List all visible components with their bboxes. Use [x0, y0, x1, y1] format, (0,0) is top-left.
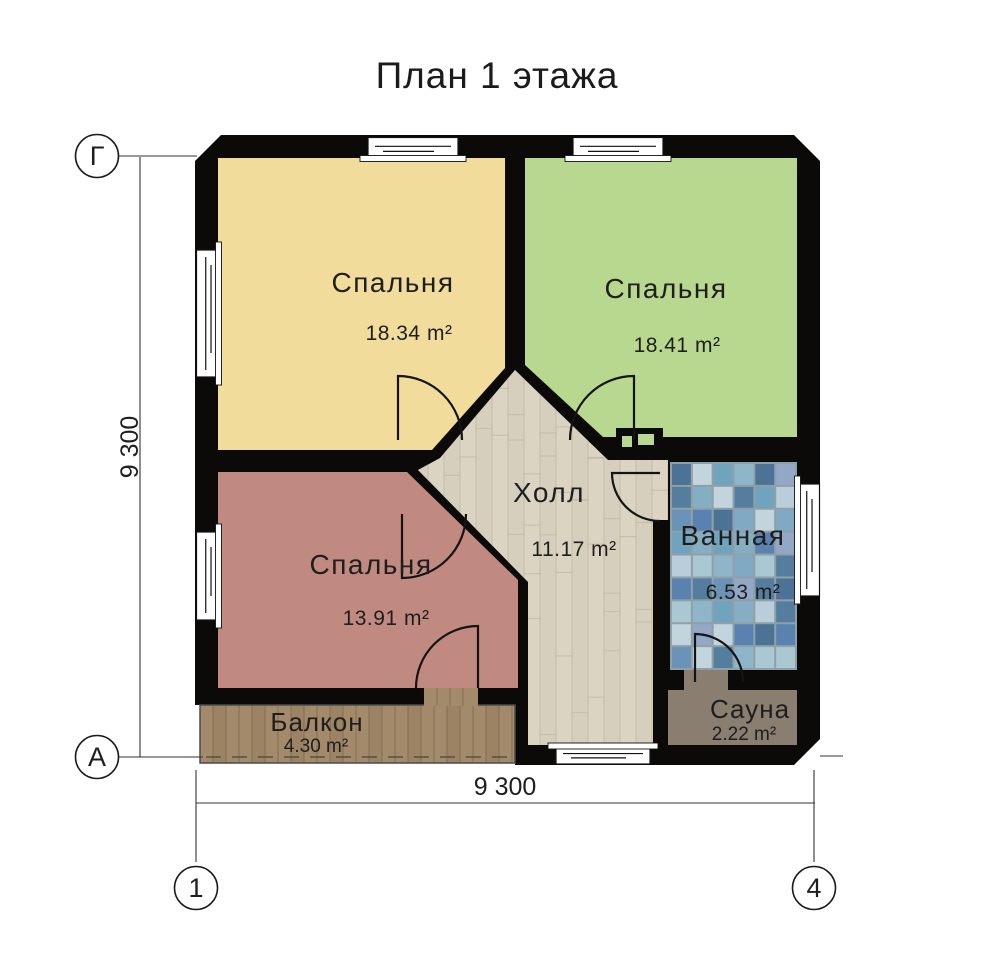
window-symbol [565, 138, 671, 162]
window-symbol [197, 524, 222, 628]
axis-label-col-right: 4 [806, 873, 821, 903]
balcony-name: Балкон [270, 707, 363, 737]
wall-bathroom-left [653, 520, 668, 670]
window-symbol [795, 476, 820, 604]
room-bathroom [670, 462, 797, 670]
hall-name: Холл [513, 477, 585, 508]
bedroom1-name: Спальня [331, 267, 454, 298]
hall-area: 11.17 m² [531, 538, 616, 561]
room-bedroom1 [218, 158, 505, 450]
balcony-door-threshold [424, 688, 478, 706]
axis-label-row-bottom: А [88, 742, 106, 772]
sauna-door-gap [684, 670, 728, 690]
bedroom3-area: 13.91 m² [343, 607, 430, 630]
bedroom2-area: 18.41 m² [634, 334, 721, 357]
dim-text-left: 9 300 [116, 416, 144, 479]
window-symbol [548, 743, 658, 764]
sauna-area: 2.22 m² [712, 724, 776, 745]
page-title: План 1 этажа [376, 55, 619, 96]
axis-label-col-left: 1 [188, 873, 203, 903]
bedroom1-area: 18.34 m² [366, 322, 453, 345]
floor-plan-svg: План 1 этажа [0, 0, 990, 964]
floor-plan-page: План 1 этажа [0, 0, 990, 964]
bedroom3-name: Спальня [309, 549, 432, 580]
bathroom-area: 6.53 m² [706, 581, 781, 604]
balcony-area: 4.30 m² [284, 736, 348, 757]
vent-shaft-icon [616, 428, 663, 458]
sauna-name: Сауна [710, 694, 790, 724]
bedroom2-name: Спальня [604, 273, 727, 304]
wall-sauna-left [653, 690, 668, 745]
dim-text-bottom: 9 300 [474, 773, 537, 801]
bathroom-name: Ванная [681, 520, 786, 551]
window-symbol [360, 138, 466, 162]
window-symbol [197, 242, 222, 385]
axis-label-row-top: Г [90, 141, 105, 171]
